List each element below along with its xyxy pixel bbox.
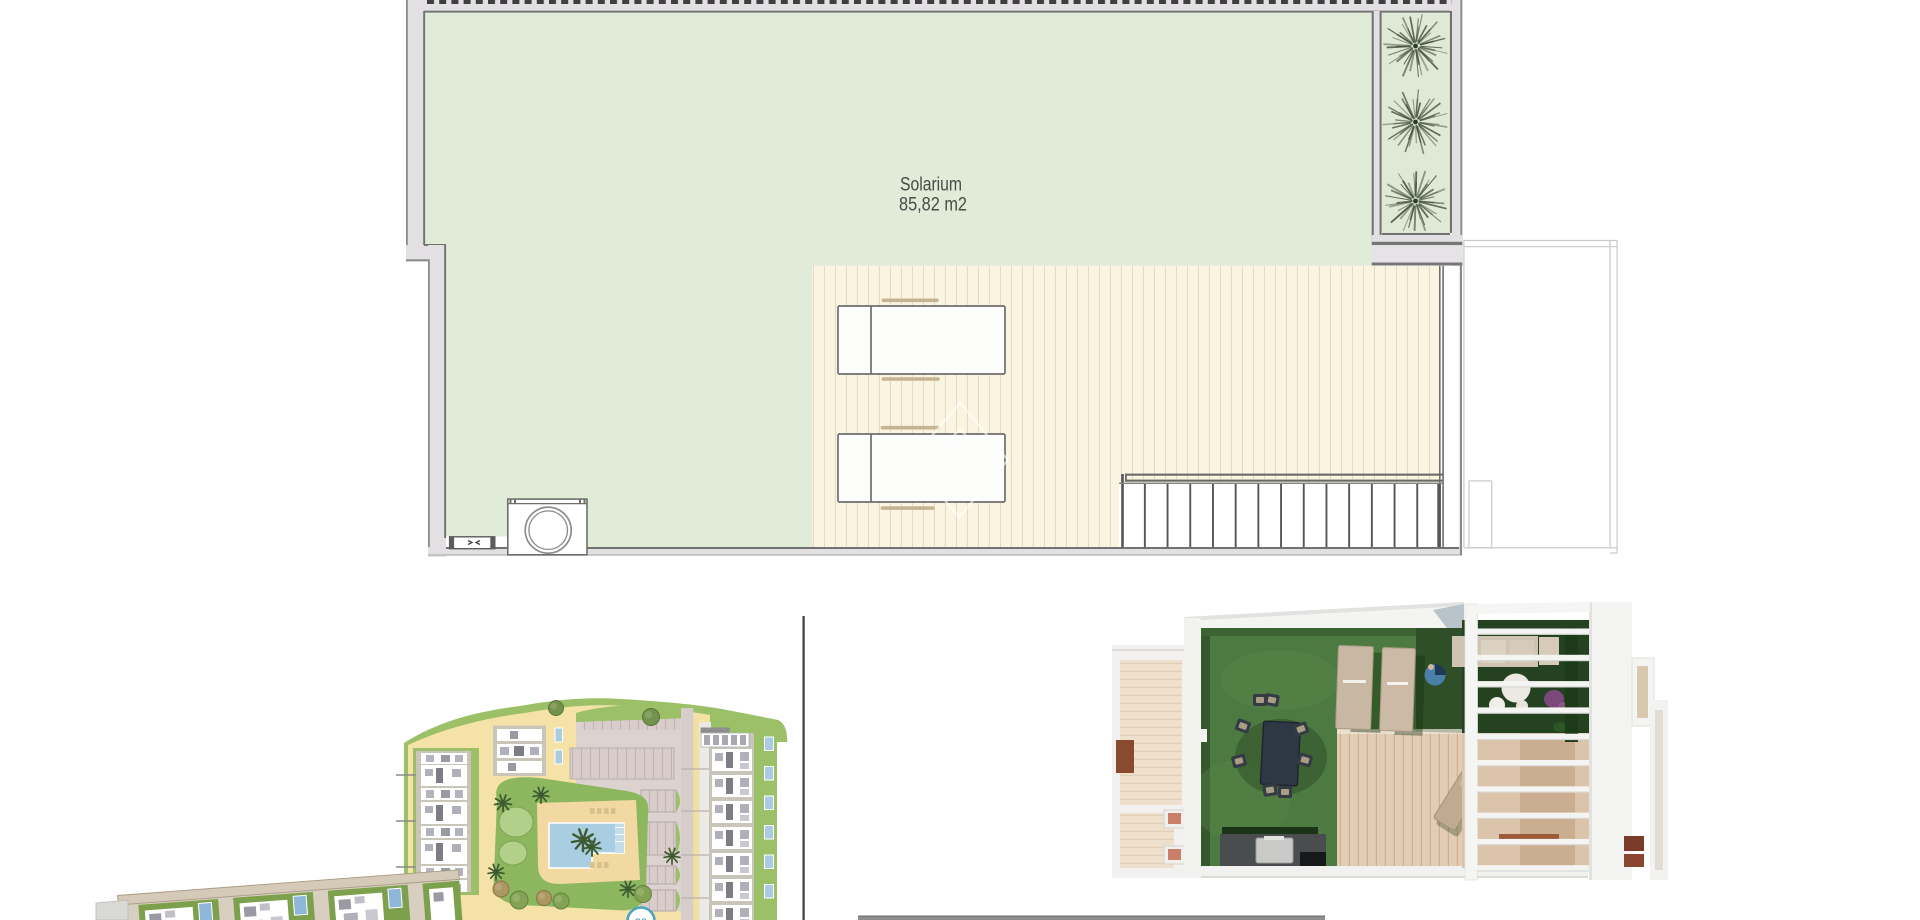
svg-text:85,82 m2: 85,82 m2 (899, 195, 967, 216)
svg-text:Solarium: Solarium (900, 175, 962, 196)
